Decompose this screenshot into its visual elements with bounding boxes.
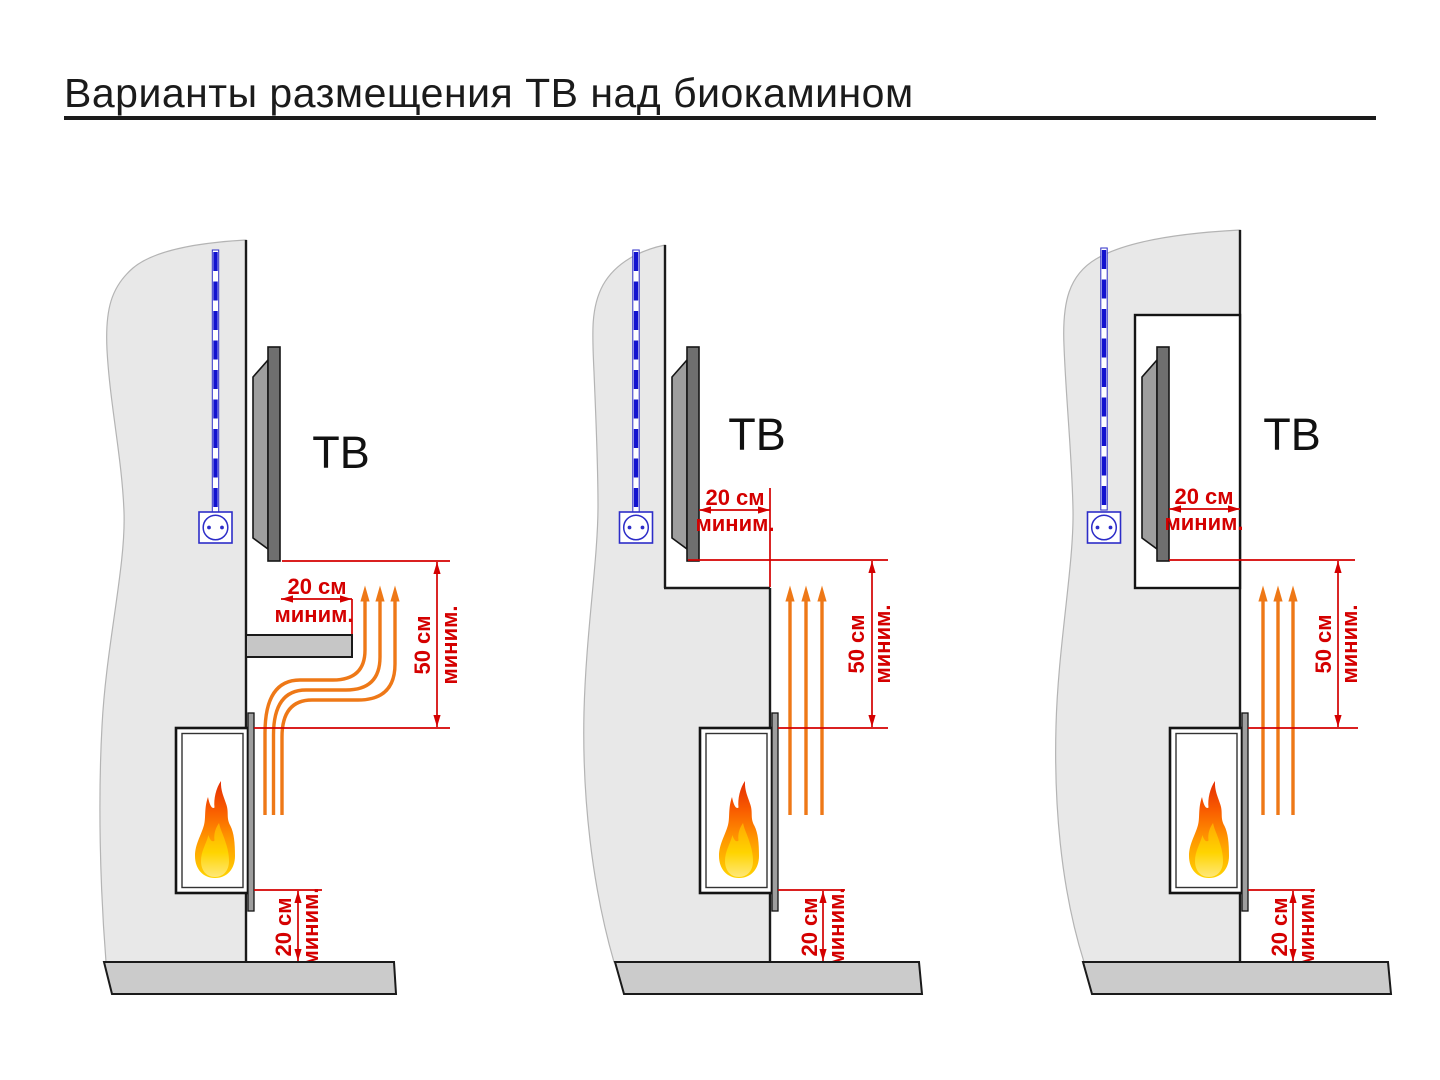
dim-20cm-floor-min: миним. [824, 888, 849, 967]
heat-arrowhead [817, 586, 826, 602]
dim-20cm-floor-label: 20 см [797, 897, 822, 956]
floor-slab [104, 962, 396, 994]
heat-arrowhead [785, 586, 794, 602]
dim-50cm-label: 50 см [410, 615, 435, 674]
dim-50cm-min: миним. [437, 606, 462, 685]
dim-20cm-floor-label: 20 см [1267, 897, 1292, 956]
heat-arrowhead [1288, 586, 1297, 602]
heat-flow-straight [785, 586, 826, 816]
heat-arrowhead [360, 586, 369, 602]
variant-step: ТВ 20 см миним. 50 см миним. 20 см миним… [584, 245, 895, 967]
power-outlet-icon [199, 512, 232, 543]
dim-20cm-side-label: 20 см [1174, 484, 1233, 509]
heat-flow-straight [1258, 586, 1297, 816]
dim-20cm-floor-label: 20 см [271, 897, 296, 956]
dim-20cm-side-label: 20 см [287, 574, 346, 599]
dim-50cm-min: миним. [870, 605, 895, 684]
variant-niche: ТВ 20 см миним. 50 см миним. 20 см миним… [1056, 230, 1362, 967]
dim-20cm-floor-min: миним. [298, 888, 323, 967]
dim-20cm-side-label: 20 см [705, 485, 764, 510]
floor-slab [1083, 962, 1391, 994]
floor-slab [615, 962, 922, 994]
dim-20cm-side-min: миним. [275, 602, 354, 627]
dim-20cm-side-min: миним. [696, 511, 775, 536]
heat-arrowhead [375, 586, 384, 602]
dim-50cm-label: 50 см [1311, 614, 1336, 673]
power-outlet-icon [1088, 512, 1121, 543]
tv-label: ТВ [312, 427, 370, 478]
page: Варианты размещения ТВ над биокамином [0, 0, 1440, 1080]
tv-label: ТВ [1263, 409, 1321, 460]
deflector-shelf [246, 635, 352, 657]
biofireplace [700, 713, 778, 911]
dim-20cm-floor-min: миним. [1294, 888, 1319, 967]
diagram-canvas: ТВ 20 см миним. 50 см миним. 20 см миним… [0, 0, 1440, 1080]
power-cable-icon [633, 250, 639, 512]
dim-50cm-min: миним. [1337, 605, 1362, 684]
power-cable-icon [212, 250, 218, 512]
dim-20cm-side-min: миним. [1165, 510, 1244, 535]
heat-arrowhead [1273, 586, 1282, 602]
power-cable-icon [1101, 248, 1107, 510]
power-outlet-icon [620, 512, 653, 543]
biofireplace [176, 713, 254, 911]
biofireplace [1170, 713, 1248, 911]
tv-label: ТВ [728, 409, 786, 460]
heat-arrowhead [390, 586, 399, 602]
tv-side-view [253, 347, 280, 561]
heat-arrowhead [1258, 586, 1267, 602]
dim-50cm-label: 50 см [844, 614, 869, 673]
heat-arrowhead [801, 586, 810, 602]
variant-shelf: ТВ 20 см миним. 50 см миним. 20 см миним… [100, 240, 462, 967]
